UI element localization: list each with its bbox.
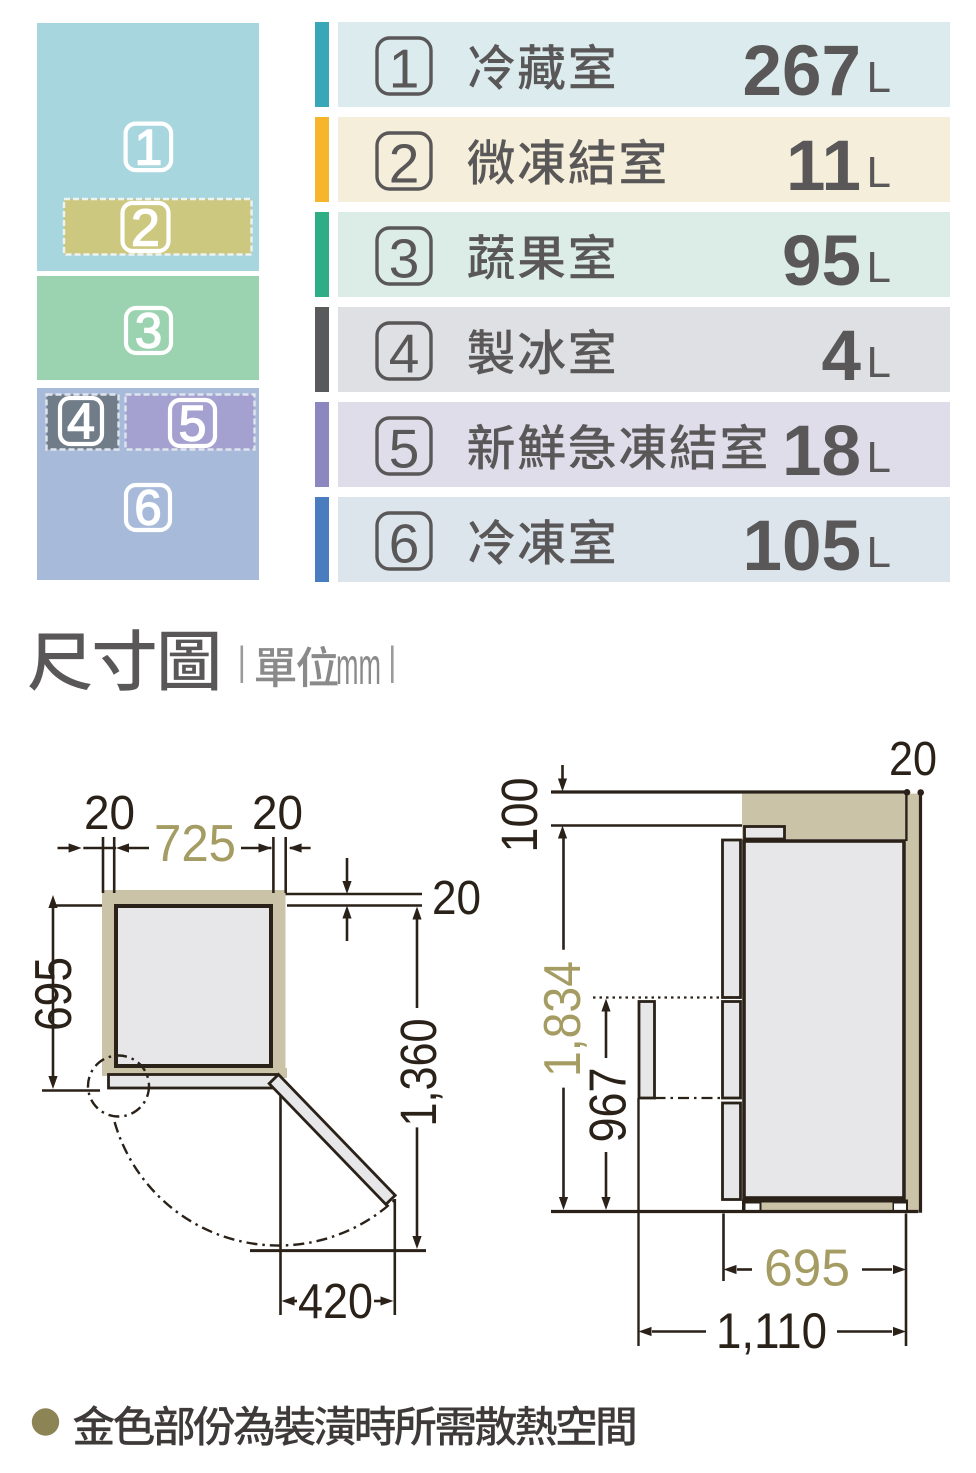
svg-text:L: L bbox=[867, 433, 891, 482]
svg-text:1,360: 1,360 bbox=[390, 1019, 447, 1127]
svg-text:2: 2 bbox=[131, 199, 160, 257]
svg-text:mm: mm bbox=[336, 638, 381, 696]
svg-text:20: 20 bbox=[889, 733, 937, 786]
svg-text:4: 4 bbox=[389, 323, 420, 385]
svg-text:20: 20 bbox=[432, 872, 481, 925]
svg-text:695: 695 bbox=[25, 957, 83, 1031]
svg-text:11: 11 bbox=[786, 127, 861, 206]
svg-text:L: L bbox=[867, 148, 891, 197]
svg-text:5: 5 bbox=[389, 418, 420, 480]
svg-text:267: 267 bbox=[743, 32, 861, 111]
svg-text:20: 20 bbox=[84, 787, 135, 840]
svg-text:1,110: 1,110 bbox=[716, 1303, 827, 1359]
svg-text:2: 2 bbox=[389, 133, 420, 195]
svg-text:4: 4 bbox=[67, 394, 95, 450]
svg-text:18: 18 bbox=[782, 412, 861, 491]
svg-text:695: 695 bbox=[764, 1240, 850, 1298]
svg-text:3: 3 bbox=[135, 305, 162, 359]
svg-text:L: L bbox=[867, 338, 891, 387]
svg-text:L: L bbox=[867, 528, 891, 577]
svg-text:95: 95 bbox=[782, 222, 861, 301]
svg-text:105: 105 bbox=[743, 507, 861, 586]
svg-text:6: 6 bbox=[389, 513, 420, 575]
svg-text:4: 4 bbox=[822, 317, 862, 396]
svg-text:3: 3 bbox=[389, 228, 420, 290]
svg-text:725: 725 bbox=[154, 815, 236, 873]
svg-text:1: 1 bbox=[134, 119, 162, 175]
svg-text:420: 420 bbox=[298, 1275, 373, 1329]
svg-text:20: 20 bbox=[252, 787, 303, 840]
svg-text:6: 6 bbox=[134, 482, 161, 536]
svg-text:967: 967 bbox=[580, 1068, 638, 1143]
svg-text:L: L bbox=[867, 243, 891, 292]
svg-text:1,834: 1,834 bbox=[534, 961, 592, 1077]
svg-text:100: 100 bbox=[491, 778, 548, 853]
svg-text:L: L bbox=[867, 53, 891, 102]
svg-text:5: 5 bbox=[179, 396, 207, 452]
svg-text:1: 1 bbox=[389, 38, 420, 100]
